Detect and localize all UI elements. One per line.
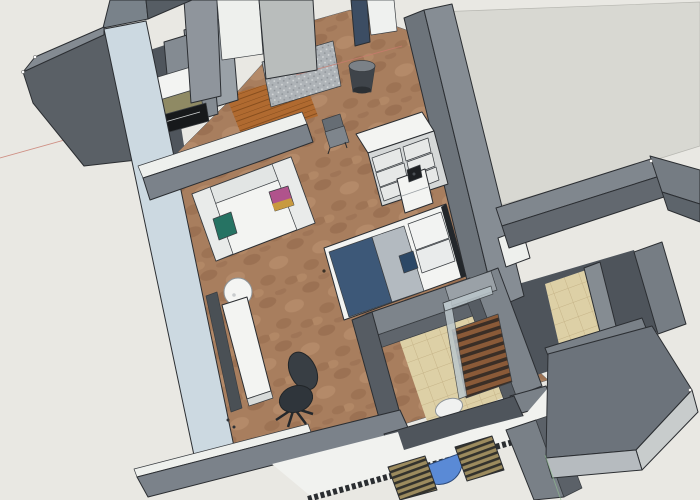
table-detail [232,293,236,297]
sideboard-knob [233,426,236,429]
tall-cabinet-left[interactable] [184,0,221,103]
sideboard-knob [227,419,230,422]
tall-cabinet-gap [217,0,263,60]
floorplan-3d-canvas[interactable] [0,0,700,500]
trash-can[interactable] [349,61,375,94]
model-viewport[interactable] [0,0,700,500]
lamp-detail [413,173,416,176]
tall-cabinet-right[interactable] [259,0,317,79]
pantry-column-white[interactable] [367,0,397,35]
floor-speck [322,269,325,272]
